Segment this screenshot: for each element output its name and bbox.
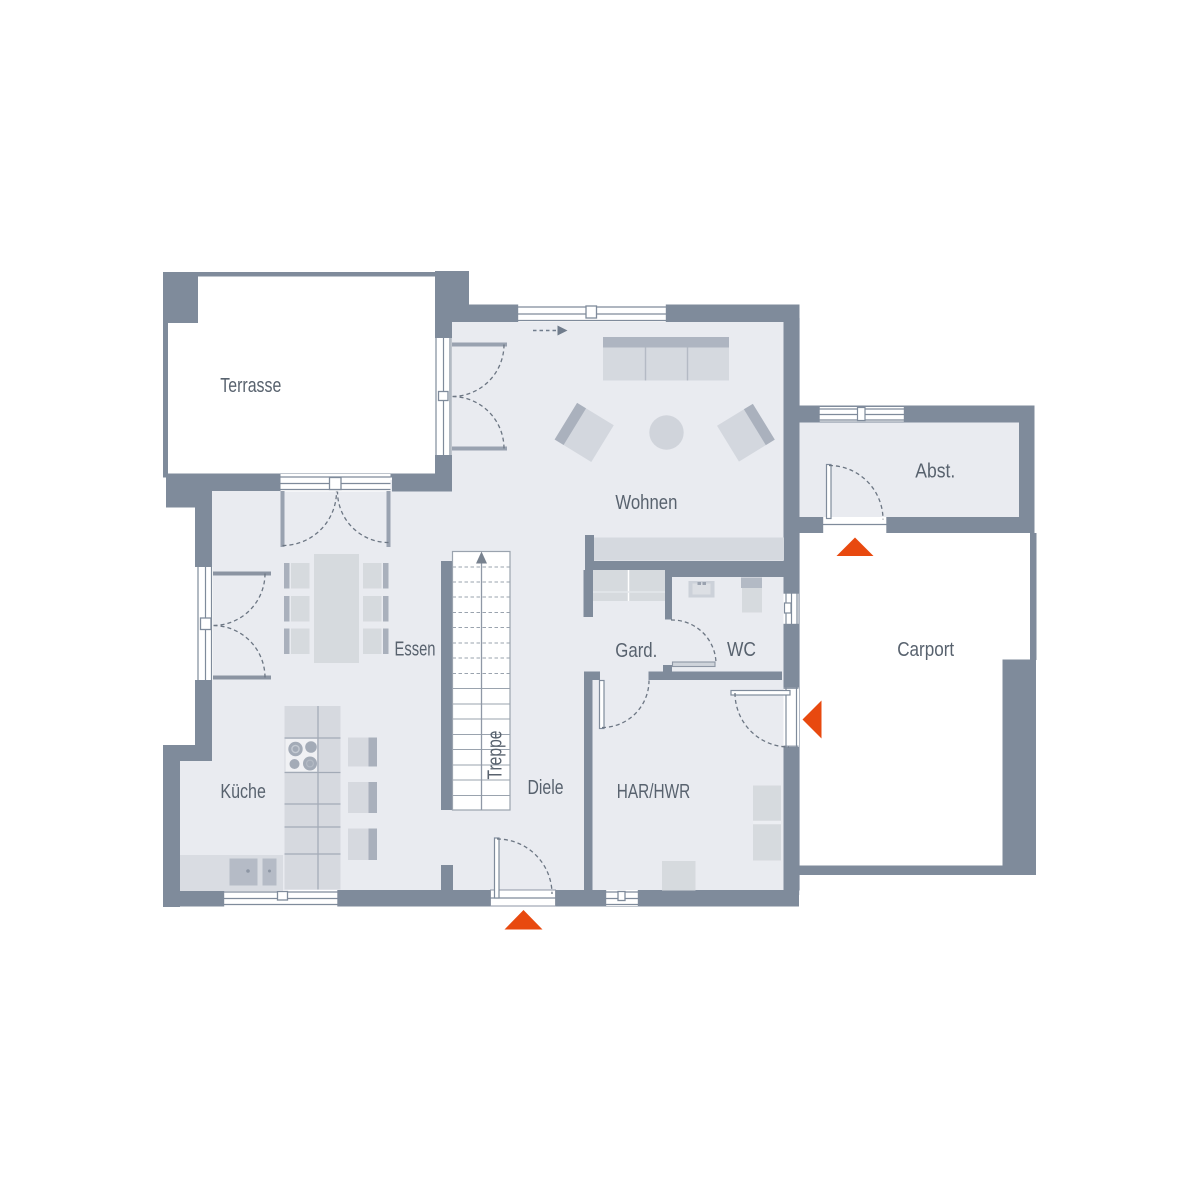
svg-text:Essen: Essen	[395, 639, 436, 661]
svg-text:Diele: Diele	[528, 777, 564, 799]
svg-text:Küche: Küche	[220, 781, 266, 803]
svg-text:Treppe: Treppe	[485, 731, 507, 780]
svg-text:Abst.: Abst.	[915, 461, 955, 483]
svg-text:WC: WC	[727, 639, 756, 661]
svg-text:Carport: Carport	[897, 639, 954, 661]
svg-text:Terrasse: Terrasse	[220, 375, 281, 397]
svg-text:HAR/HWR: HAR/HWR	[617, 781, 691, 803]
svg-text:Wohnen: Wohnen	[615, 492, 677, 514]
svg-text:Gard.: Gard.	[615, 640, 657, 662]
